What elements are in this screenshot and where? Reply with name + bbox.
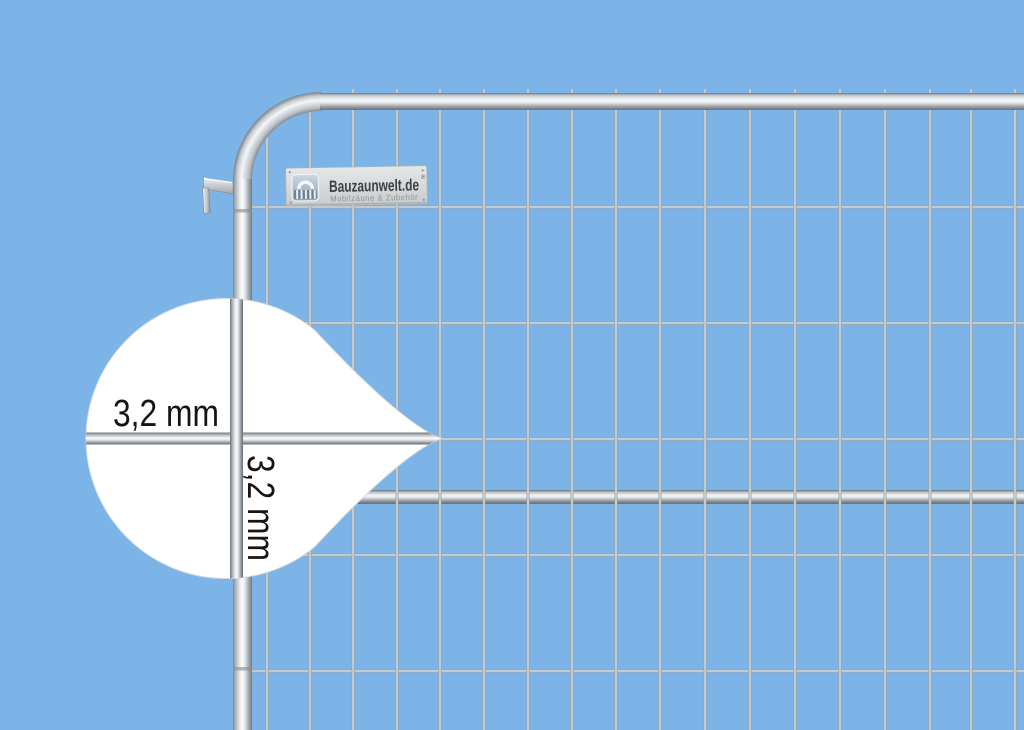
registered-mark: ® xyxy=(421,174,426,181)
mesh-vertical-wire xyxy=(929,89,932,730)
tube-seam xyxy=(233,209,252,213)
mesh-vertical-wire xyxy=(571,89,574,730)
mesh-horizontal-wire xyxy=(240,206,1024,209)
mesh-vertical-wire xyxy=(659,89,662,730)
mesh-vertical-wire xyxy=(439,89,442,730)
mesh-horizontal-wire xyxy=(240,554,1024,557)
mesh-horizontal-wire xyxy=(240,322,1024,325)
brand-plate: Bauzaunwelt.de ® Mobilzäune & Zubehör xyxy=(286,166,428,206)
horizontal-thickness-label: 3,2 mm xyxy=(113,393,219,435)
tube-seam xyxy=(233,667,252,671)
mesh-vertical-wire xyxy=(615,89,618,730)
mesh-vertical-wire xyxy=(884,89,887,730)
mesh-vertical-wire xyxy=(794,89,797,730)
brand-tagline-label: Mobilzäune & Zubehör xyxy=(330,192,418,204)
mesh-vertical-wire xyxy=(704,89,707,730)
mesh-vertical-wire xyxy=(483,89,486,730)
vertical-thickness-label: 3,2 mm xyxy=(239,455,281,561)
fence-photo-svg: Bauzaunwelt.de ® Mobilzäune & Zubehör 3,… xyxy=(0,0,1024,730)
mesh-vertical-wire xyxy=(749,89,752,730)
mesh-vertical-wire xyxy=(970,89,973,730)
mesh-vertical-wire xyxy=(527,89,530,730)
frame-top-tube xyxy=(320,93,1024,110)
mesh-vertical-wire xyxy=(1014,89,1017,730)
brand-logo-icon xyxy=(292,174,319,201)
fence-product-photo: Bauzaunwelt.de ® Mobilzäune & Zubehör 3,… xyxy=(0,0,1024,730)
mesh-vertical-wire xyxy=(839,89,842,730)
mesh-horizontal-wire xyxy=(240,670,1024,673)
